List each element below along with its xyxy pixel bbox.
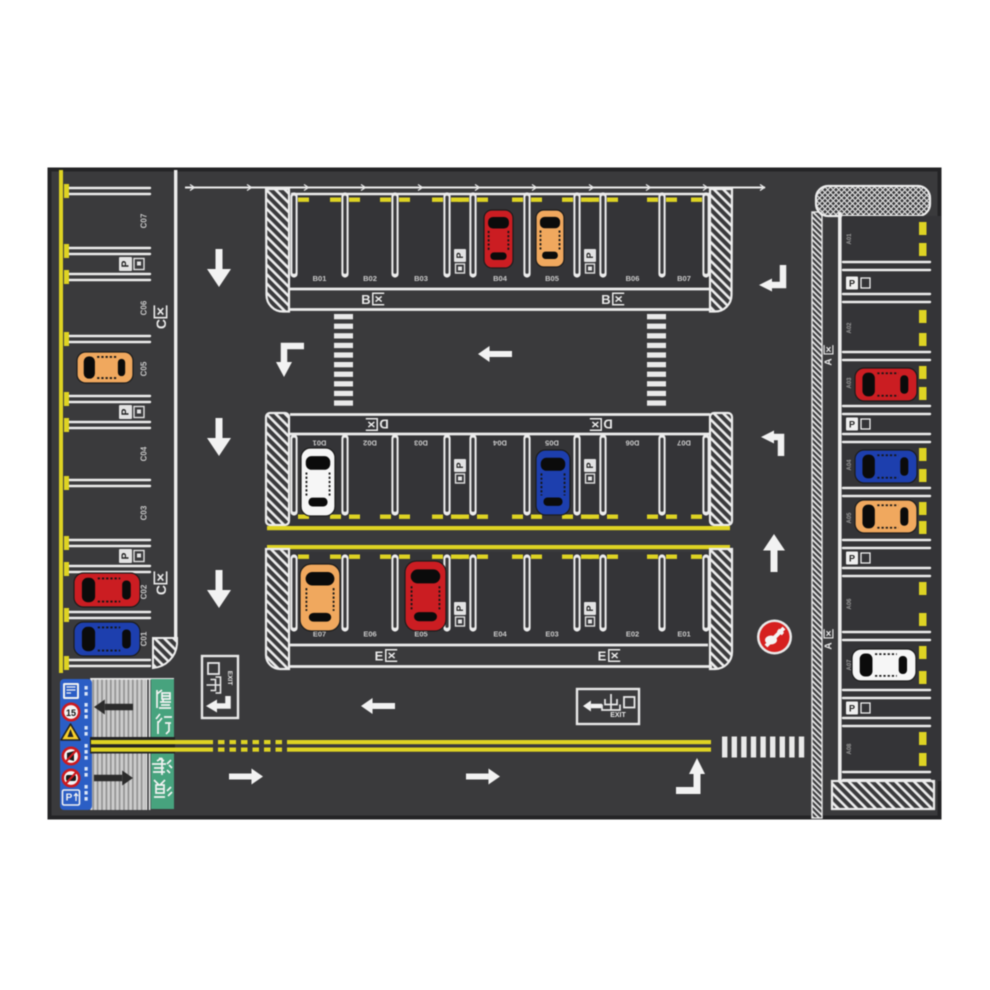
svg-text:C02: C02: [140, 584, 149, 599]
svg-text:E01: E01: [677, 630, 690, 639]
svg-text:C: C: [153, 319, 169, 329]
svg-text:A: A: [824, 358, 835, 365]
svg-text:E: E: [598, 649, 607, 664]
svg-text:A: A: [824, 642, 835, 649]
svg-text:B07: B07: [677, 274, 691, 283]
svg-text:B: B: [361, 292, 370, 307]
svg-text:B01: B01: [313, 274, 327, 283]
svg-text:D01: D01: [313, 439, 327, 448]
svg-text:A06: A06: [847, 598, 853, 610]
svg-text:B06: B06: [626, 274, 640, 283]
svg-text:P: P: [66, 793, 73, 804]
svg-text:E04: E04: [493, 630, 507, 639]
svg-text:D06: D06: [626, 439, 640, 448]
svg-text:E: E: [375, 649, 384, 664]
svg-text:A04: A04: [847, 459, 853, 471]
svg-text:B05: B05: [545, 274, 559, 283]
svg-text:A08: A08: [847, 743, 853, 755]
svg-text:P: P: [121, 552, 132, 559]
svg-text:B04: B04: [493, 274, 508, 283]
svg-text:D: D: [379, 417, 388, 432]
svg-text:C06: C06: [140, 300, 149, 315]
svg-text:P: P: [455, 462, 465, 468]
svg-text:D04: D04: [492, 439, 507, 448]
svg-text:D02: D02: [363, 439, 377, 448]
svg-text:A05: A05: [847, 512, 853, 524]
svg-text:P: P: [849, 279, 855, 289]
svg-text:C07: C07: [140, 213, 149, 228]
svg-text:D03: D03: [414, 439, 428, 448]
svg-text:D05: D05: [545, 439, 559, 448]
svg-text:B02: B02: [363, 274, 377, 283]
svg-text:D: D: [603, 417, 612, 432]
svg-text:P: P: [585, 462, 595, 468]
svg-text:15: 15: [66, 708, 76, 718]
svg-text:P: P: [585, 252, 595, 258]
svg-text:E02: E02: [626, 630, 639, 639]
svg-text:P: P: [585, 605, 595, 611]
svg-text:P: P: [455, 252, 465, 258]
svg-text:B03: B03: [414, 274, 428, 283]
svg-text:P: P: [849, 554, 855, 564]
svg-text:C03: C03: [140, 505, 149, 520]
svg-text:EXIT: EXIT: [226, 671, 233, 685]
svg-text:D07: D07: [677, 439, 691, 448]
svg-text:EXIT: EXIT: [610, 712, 626, 719]
svg-text:P: P: [849, 704, 855, 714]
svg-text:A03: A03: [847, 377, 853, 389]
svg-text:P: P: [121, 408, 132, 415]
svg-text:P: P: [121, 260, 132, 267]
svg-text:E06: E06: [363, 630, 376, 639]
svg-text:C04: C04: [140, 446, 149, 461]
svg-text:C01: C01: [140, 631, 149, 646]
svg-text:E03: E03: [545, 630, 558, 639]
svg-text:C: C: [153, 585, 169, 595]
svg-text:B: B: [601, 292, 610, 307]
svg-text:P: P: [455, 605, 465, 611]
svg-text:C05: C05: [140, 361, 149, 376]
svg-text:A02: A02: [847, 322, 853, 334]
svg-text:P: P: [849, 420, 855, 430]
svg-text:A01: A01: [847, 233, 853, 245]
